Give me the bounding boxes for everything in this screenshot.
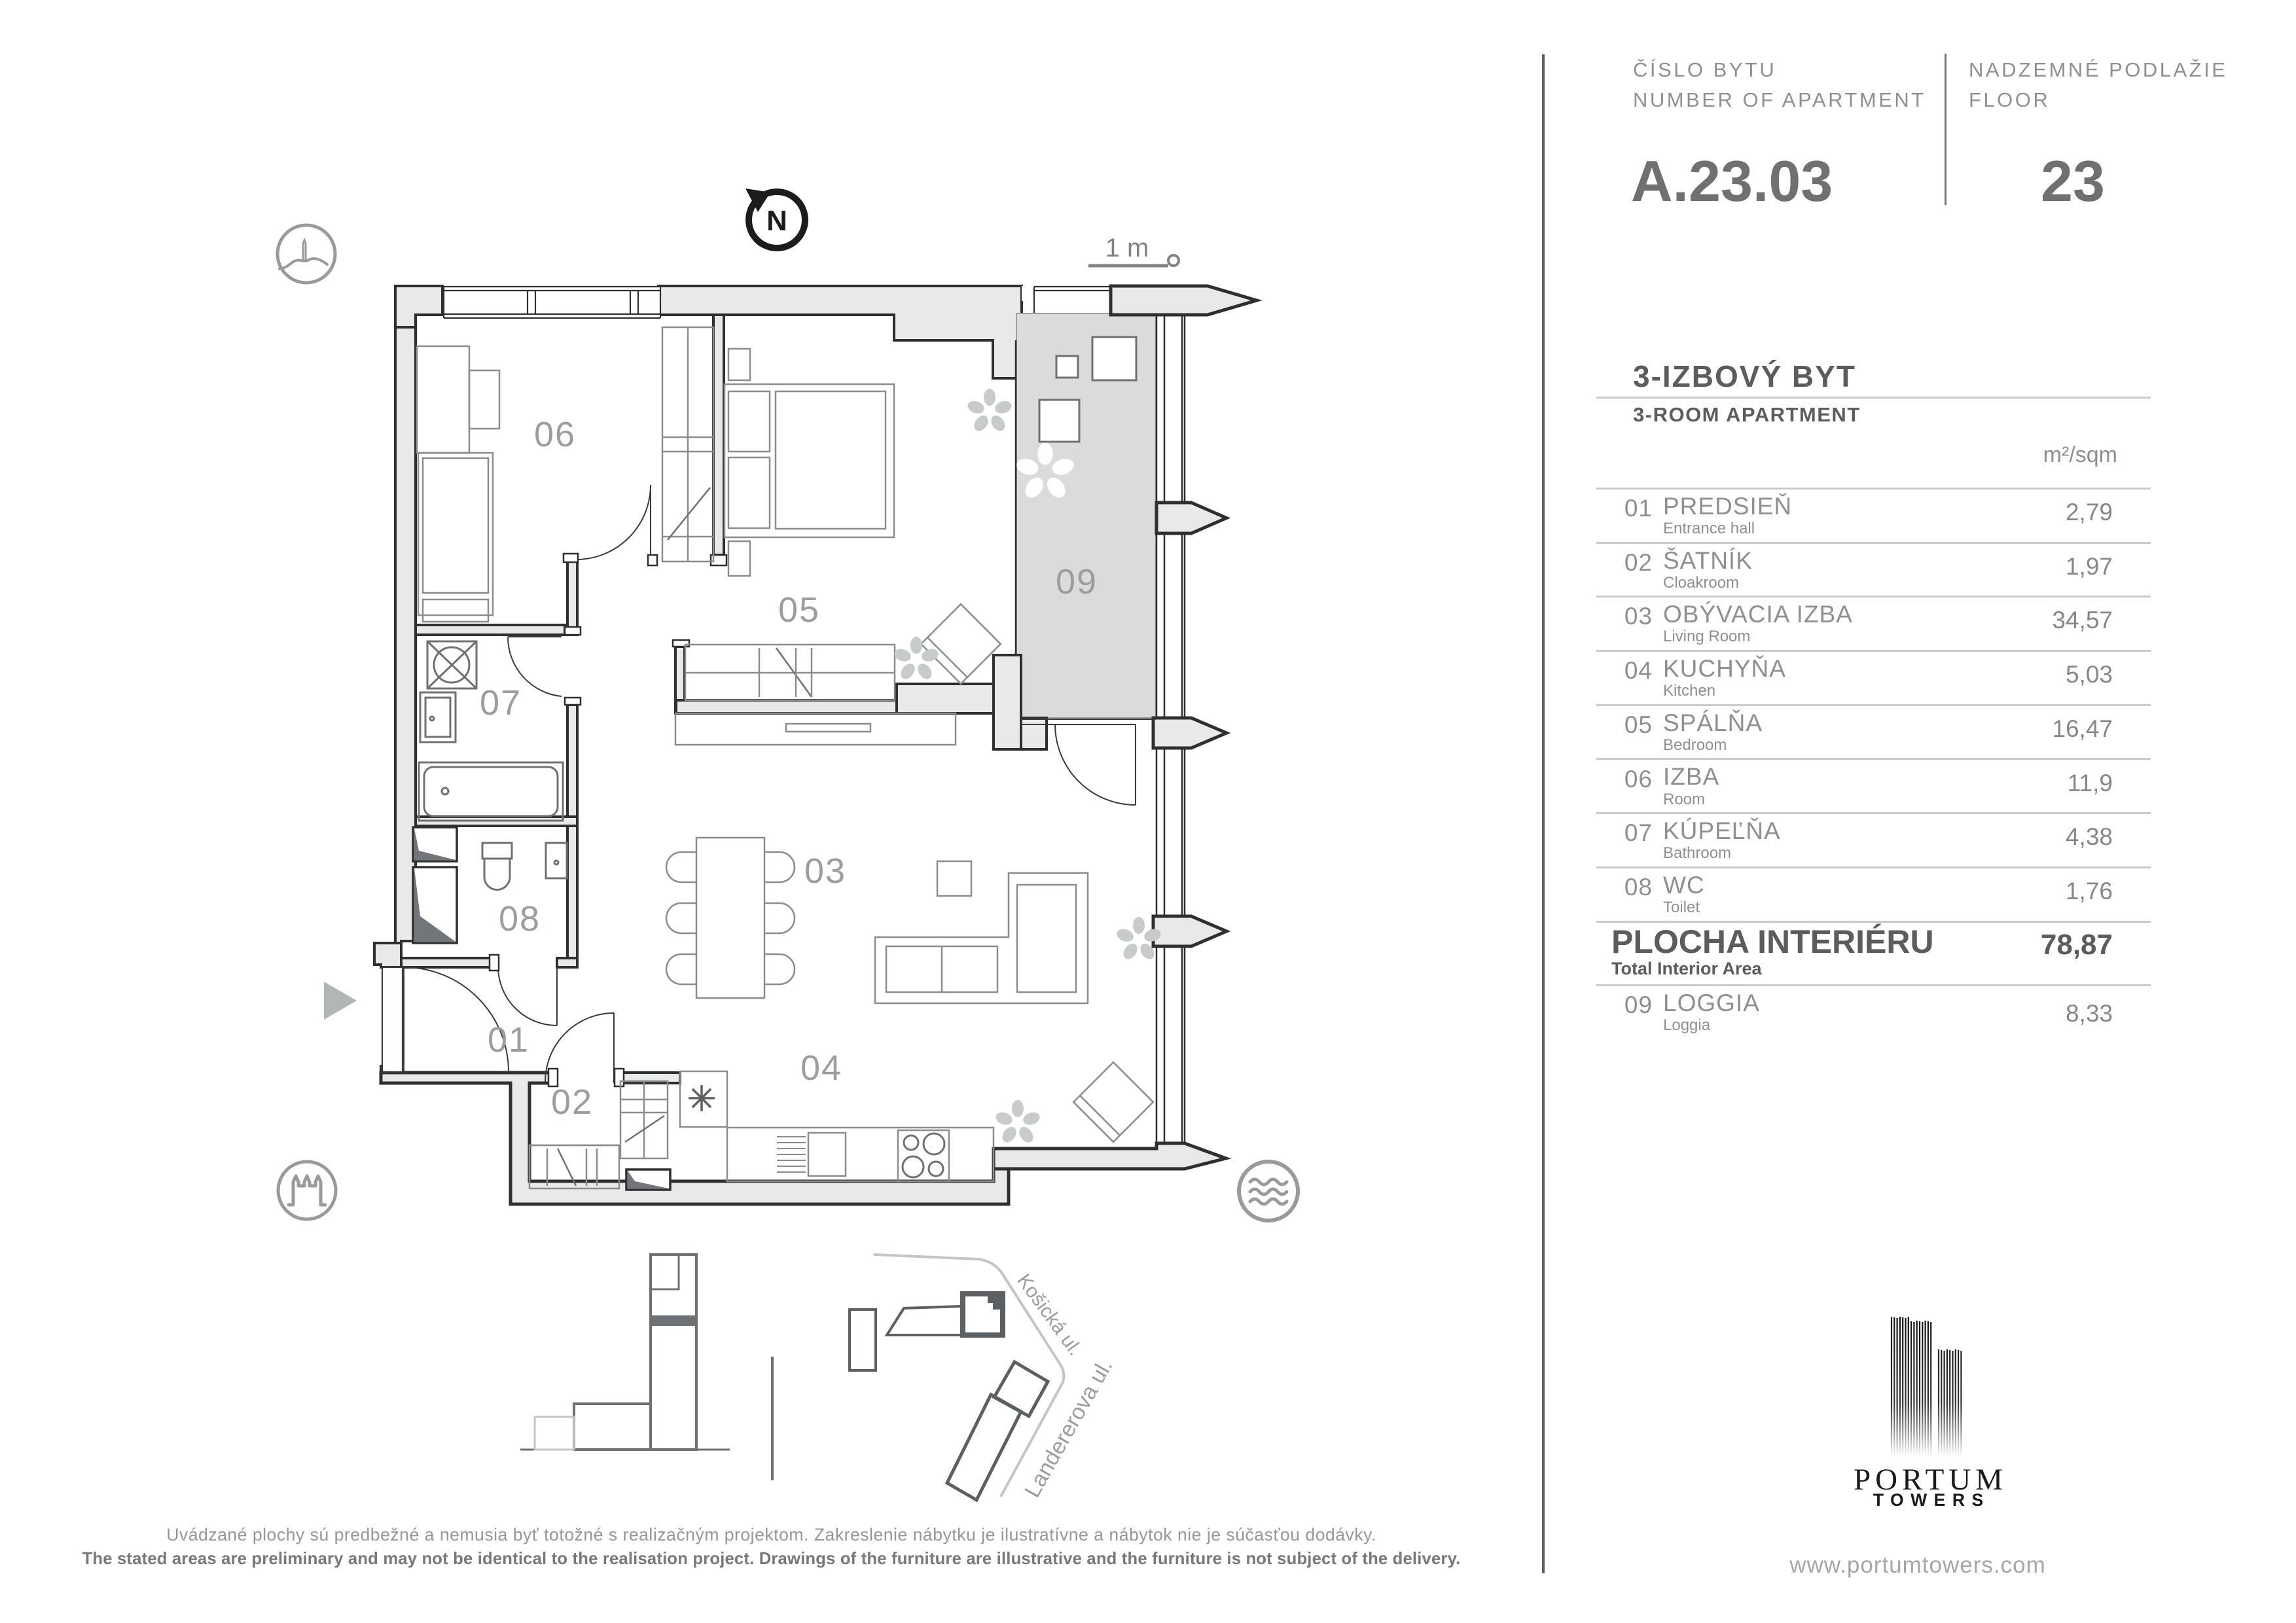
svg-text:06: 06: [534, 415, 576, 454]
svg-text:02: 02: [551, 1082, 593, 1122]
svg-text:07: 07: [480, 683, 522, 722]
svg-text:03: 03: [804, 851, 846, 891]
svg-text:1 m: 1 m: [1105, 234, 1149, 262]
svg-text:04: 04: [800, 1048, 842, 1088]
svg-text:08: 08: [499, 899, 541, 938]
svg-text:09: 09: [1056, 562, 1098, 601]
svg-text:05: 05: [778, 590, 820, 630]
svg-text:Landererova ul.: Landererova ul.: [1020, 1355, 1117, 1501]
svg-text:N: N: [766, 205, 787, 237]
svg-text:01: 01: [488, 1020, 529, 1060]
